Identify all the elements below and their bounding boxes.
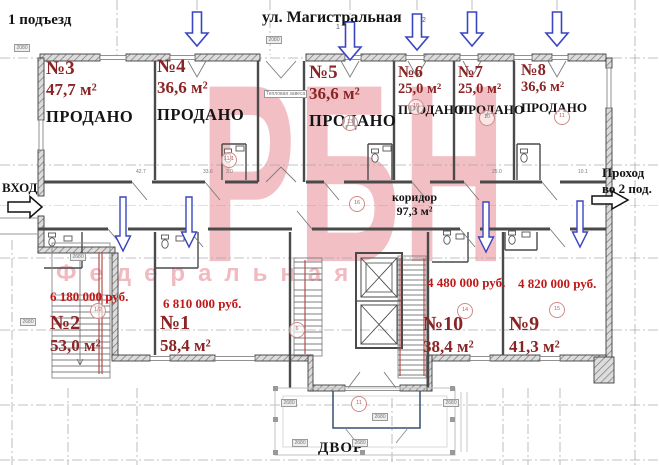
plan-tag: 10 [479,110,495,126]
plan-tag: 11 [351,396,367,412]
arrow-down-icon [186,12,208,46]
apartment-1: №1 58,4 м² [160,312,211,356]
price-apartment-2: 6 180 000 руб. [50,289,128,305]
apartment-3: №3 47,7 м² ПРОДАНО [46,58,133,127]
apartment-number: №3 [46,58,133,80]
toilet-icon [509,231,516,244]
arrow-down-icon [573,201,588,247]
apartment-number: №1 [160,312,211,336]
passage-line2: во 2 под. [602,181,652,197]
black-arrows [8,191,628,218]
plan-tag: 1/2 [90,303,106,319]
plan-tag: 6 [289,322,305,338]
corridor-name: коридор [392,191,437,205]
dimension-box: 2080 [14,44,30,52]
price-apartment-9: 4 820 000 руб. [518,276,596,292]
plan-tag: 15 [549,302,565,318]
apartment-area: 38,4 м² [423,337,474,357]
sold-badge: ПРОДАНО [46,107,133,126]
arrow-index: 1 [336,24,340,31]
arrow-index: 2 [422,17,426,24]
dimension-box: 2680 [20,318,36,326]
apartment-number: №5 [309,62,396,84]
apartment-4: №4 36,6 м² ПРОДАНО [157,56,244,125]
apartment-area: 53,0 м² [50,336,101,356]
toilet-icon [521,149,528,162]
plan-tag: 13 [342,115,358,131]
apartment-number: №7 [458,62,524,81]
apartment-10: №10 38,4 м² [423,313,474,357]
arrow-down-icon [479,202,494,252]
dimension-label: 25.0 [492,169,502,175]
sold-badge: ПРОДАНО [157,105,244,124]
apartment-area: 41,3 м² [509,337,560,357]
apartment-9: №9 41,3 м² [509,313,560,357]
apartment-area: 36,6 м² [521,79,587,96]
floor-plan-page: РБН Федеральная [0,0,659,465]
dimension-label: 33.6 [203,169,213,175]
dimension-box: 2680 [292,439,308,447]
corridor-area: 97,3 м² [392,205,437,219]
apartment-area: 25,0 м² [458,81,524,98]
apartment-area: 36,6 м² [157,78,244,98]
apartment-number: №8 [521,60,587,79]
entrance-title: 1 подъезд [8,12,71,29]
apartment-area: 47,7 м² [46,80,133,100]
arrow-down-icon [461,12,483,46]
street-title: ул. Магистральная [262,9,402,27]
dimension-label: 10.1 [578,169,588,175]
toilet-icon [162,235,169,248]
dimension-box: 2080 [266,36,282,44]
sink-icon [64,146,530,241]
corridor-label: коридор 97,3 м² [392,191,437,219]
apartment-number: №4 [157,56,244,78]
plan-tag: 14 [457,303,473,319]
price-apartment-10: 4 480 000 руб. [427,275,505,291]
arrow-down-icon [546,12,568,46]
toilet-icon [372,149,379,162]
plan-tag: 18 [408,99,424,115]
plan-tag: 11 [554,109,570,125]
dimension-box: 2680 [70,253,86,261]
entrance-arrow-icon [8,197,42,218]
apartment-7: №7 25,0 м² ПРОДАНО [458,62,524,117]
passage-line1: Проход [602,165,652,181]
dimension-label: 3.0 [226,169,233,175]
elevator-shafts [356,253,402,348]
plan-tag: 11/1 [221,152,237,168]
apartment-area: 36,6 м² [309,84,396,104]
apartment-2: №2 53,0 м² [50,312,101,356]
apartment-number: №6 [398,62,464,81]
dimension-box: 2680 [352,439,368,447]
price-apartment-1: 6 810 000 руб. [163,296,241,312]
vestibule-label: Тепловая завеса [264,90,307,98]
toilet-icon [444,231,451,244]
dimension-box: 2680 [372,413,388,421]
dimension-box: 2680 [281,399,297,407]
dimension-label: 42.7 [136,169,146,175]
apartment-8: №8 36,6 м² ПРОДАНО [521,60,587,115]
dimension-box: 2680 [443,399,459,407]
apartment-area: 25,0 м² [398,81,464,98]
apartment-area: 58,4 м² [160,336,211,356]
passage-label: Проход во 2 под. [602,165,652,198]
plan-tag: 16 [349,196,365,212]
entrance-label: ВХОД [2,180,37,196]
